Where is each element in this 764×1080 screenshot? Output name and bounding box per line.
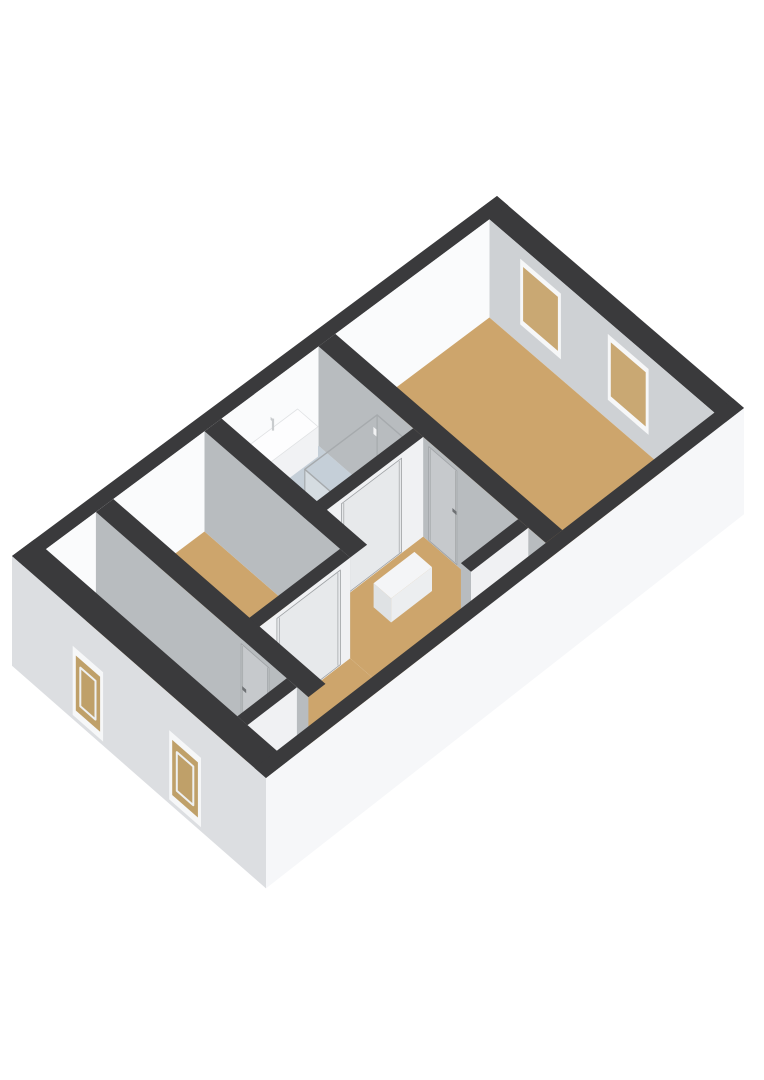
floorplan-3d-viewport [0, 0, 764, 1080]
floorplan-3d-svg [0, 0, 764, 1080]
